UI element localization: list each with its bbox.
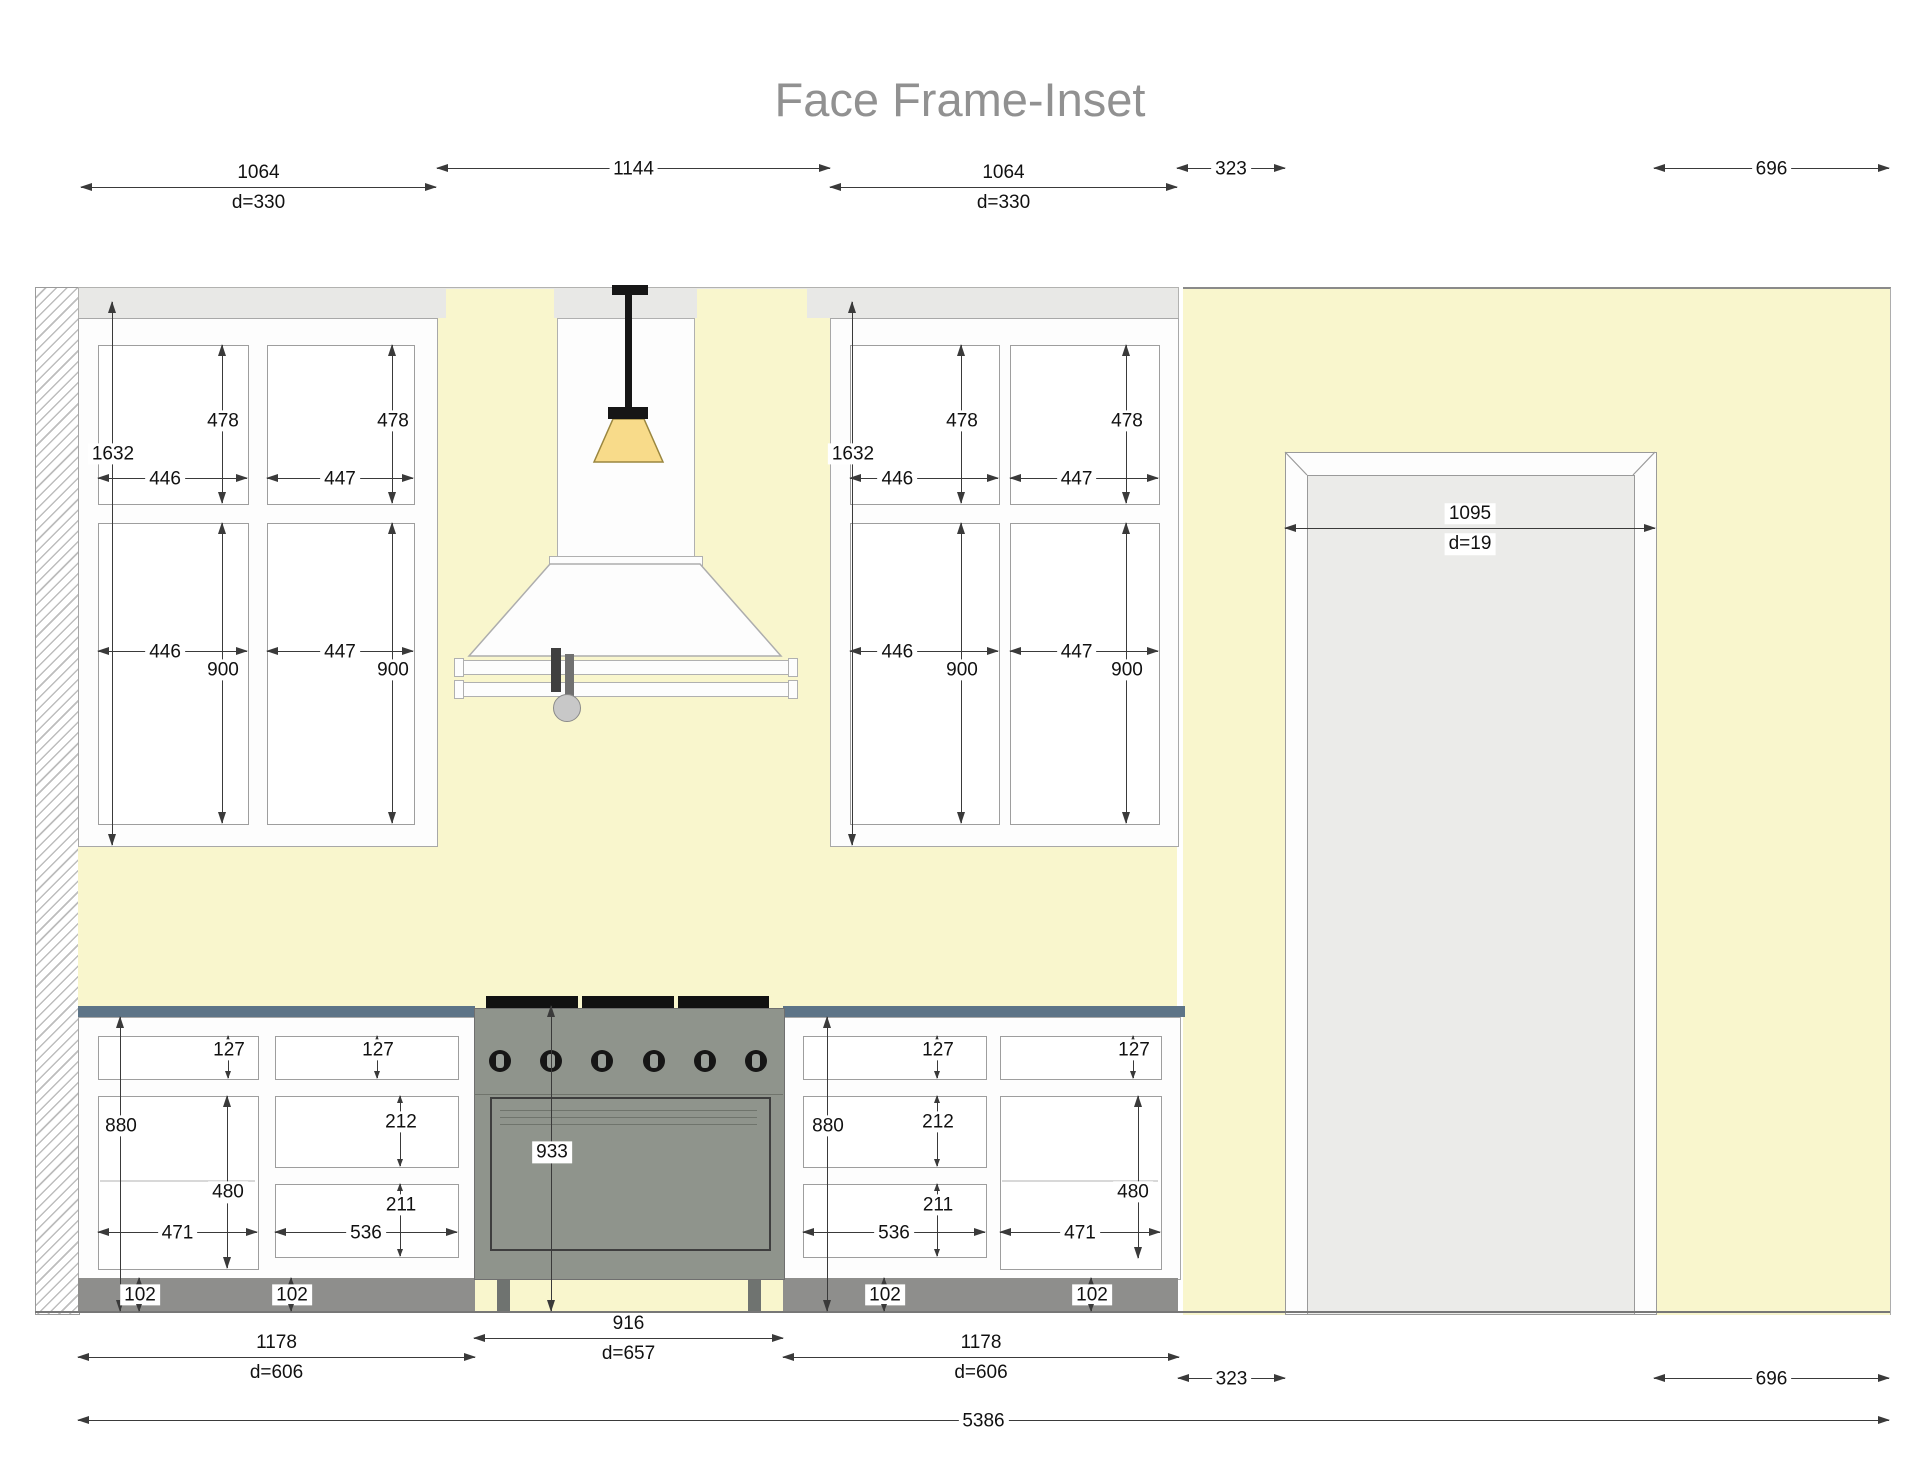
toe-kick-right: [783, 1278, 1178, 1311]
countertop-left: [78, 1006, 475, 1017]
dim-ul-door1-h: 478: [222, 345, 223, 503]
dim-upper-right-total-height: 1632: [852, 302, 853, 845]
dim-ul-lower2-h: 900: [392, 523, 393, 823]
hood-band-1-cap-left: [454, 658, 464, 677]
pendant-collar: [608, 407, 648, 419]
dim-bl-bank-drawer2-h: 212: [400, 1096, 401, 1166]
dim-bl-door-w: 471: [98, 1232, 257, 1233]
oven-door-trimline-2: [500, 1117, 757, 1118]
dim-bl-toe-kick-1: 102: [139, 1278, 140, 1311]
oven-door-trimline-1: [500, 1110, 757, 1111]
dim-br-bank-w: 536: [803, 1232, 985, 1233]
dim-br-bank-drawer2-h: 212: [937, 1096, 938, 1166]
pot-filler-escutcheon: [553, 694, 581, 722]
dim-base-right-run: 1178d=606: [783, 1357, 1179, 1358]
hood-band-2: [462, 682, 790, 697]
dim-br-toe-kick-1: 102: [884, 1278, 885, 1311]
dim-top-right-wall: 696: [1654, 168, 1889, 169]
dim-top-gap: 323: [1177, 168, 1285, 169]
hood-band-1-cap-right: [788, 658, 798, 677]
page-title: Face Frame-Inset: [0, 72, 1920, 127]
base-right-bank-drawer-1: [803, 1036, 987, 1080]
dim-total-width: 5386: [78, 1420, 1889, 1421]
range-knob-4: [643, 1050, 665, 1072]
range-knob-6: [745, 1050, 767, 1072]
hood-band-2-cap-right: [788, 680, 798, 699]
hood-band-1: [462, 660, 790, 675]
dim-bl-bank-drawer1-h: 127: [377, 1036, 378, 1078]
hood-chimney-lip: [549, 556, 703, 566]
range-knob-3: [591, 1050, 613, 1072]
dim-base-right-height: 880: [827, 1017, 828, 1311]
dim-base-left-run: 1178d=606: [78, 1357, 475, 1358]
dim-br-door-h: 480: [1138, 1096, 1139, 1258]
range-knob-5: [694, 1050, 716, 1072]
wall-end-hatch: [35, 287, 80, 1315]
range-grate-2: [582, 996, 674, 1008]
range-knob-1: [489, 1050, 511, 1072]
dim-bl-toe-kick-2: 102: [291, 1278, 292, 1311]
dim-doorway-width: 1095d=19: [1285, 528, 1655, 529]
dim-upper-left-total-height: 1632: [112, 302, 113, 845]
dim-ul-lower2-w: 447: [267, 651, 413, 652]
range-foot-left: [497, 1280, 510, 1311]
soffit-notch-left: [446, 289, 554, 318]
dim-upper-right-width: 1064d=330: [830, 187, 1177, 188]
range-grate-3: [678, 996, 769, 1008]
dim-br-bank-drawer1-h: 127: [937, 1036, 938, 1078]
oven-door: [490, 1097, 771, 1251]
dim-counter-height: 933: [551, 1006, 552, 1311]
range-cooktop-divider: [474, 1094, 783, 1095]
dim-ur-lower1-w: 446: [850, 651, 998, 652]
dim-ur-lower1-h: 900: [961, 523, 962, 823]
drawing-canvas: Face Frame-Inset: [0, 0, 1920, 1484]
dim-ul-door1-w: 446: [98, 478, 247, 479]
floor-line: [35, 1311, 1890, 1313]
dim-br-bank-drawer3-h: 211: [937, 1184, 938, 1256]
dim-ul-lower1-h: 900: [222, 523, 223, 823]
dim-br-door-w: 471: [1000, 1232, 1160, 1233]
dim-bl-door-h: 480: [227, 1096, 228, 1268]
dim-ul-door2-h: 478: [392, 345, 393, 503]
dim-ur-door2-h: 478: [1126, 345, 1127, 503]
dim-ur-door2-w: 447: [1010, 478, 1158, 479]
dim-bl-bank-drawer3-h: 211: [400, 1184, 401, 1256]
pot-filler-arm-1: [551, 648, 561, 692]
dim-br-toe-kick-2: 102: [1091, 1278, 1092, 1311]
pendant-stem: [625, 293, 632, 409]
dim-ur-lower2-w: 447: [1010, 651, 1158, 652]
dim-br-drawer-h: 127: [1133, 1036, 1134, 1078]
dim-hood-span: 1144: [437, 168, 830, 169]
base-left-bank-drawer-3: [275, 1184, 459, 1258]
dim-upper-left-width: 1064d=330: [81, 187, 436, 188]
wall-backsplash: [78, 845, 1177, 1006]
range-foot-right: [748, 1280, 761, 1311]
hood-band-2-cap-left: [454, 680, 464, 699]
dim-ur-lower2-h: 900: [1126, 523, 1127, 823]
door-panel: [1307, 475, 1635, 1315]
countertop-right: [783, 1006, 1185, 1017]
dim-ul-door2-w: 447: [267, 478, 413, 479]
dim-bottom-gap: 323: [1178, 1378, 1285, 1379]
oven-door-trimline-3: [500, 1124, 757, 1125]
dim-base-left-height: 880: [120, 1017, 121, 1311]
range-grate-1: [486, 996, 578, 1008]
dim-ur-door1-w: 446: [850, 478, 998, 479]
soffit-notch-right: [697, 289, 807, 318]
dim-ul-lower1-w: 446: [98, 651, 247, 652]
dim-bl-drawer-h: 127: [228, 1036, 229, 1078]
dim-range-width: 916d=657: [474, 1338, 783, 1339]
base-right-bank-drawer-3: [803, 1184, 987, 1258]
base-left-bank-drawer-2: [275, 1096, 459, 1168]
dim-ur-door1-h: 478: [961, 345, 962, 503]
dim-bl-bank-w: 536: [275, 1232, 457, 1233]
dim-bottom-right-wall: 696: [1654, 1378, 1889, 1379]
